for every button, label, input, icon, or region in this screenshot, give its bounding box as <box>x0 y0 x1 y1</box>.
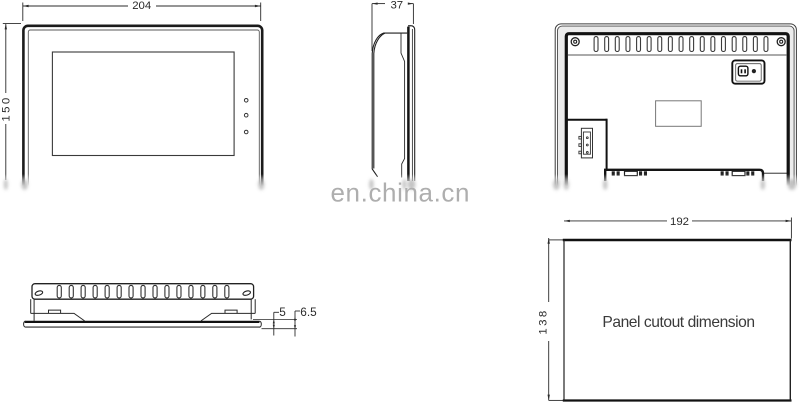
svg-text:en.china.cn: en.china.cn <box>331 178 471 208</box>
svg-text:192: 192 <box>670 216 689 228</box>
svg-text:204: 204 <box>132 0 151 12</box>
svg-text:37: 37 <box>390 0 403 11</box>
svg-text:5: 5 <box>279 305 286 319</box>
svg-text:138: 138 <box>538 308 550 334</box>
svg-text:6.5: 6.5 <box>300 305 317 319</box>
svg-text:Panel cutout dimension: Panel cutout dimension <box>602 314 754 331</box>
svg-text:150: 150 <box>1 95 13 121</box>
